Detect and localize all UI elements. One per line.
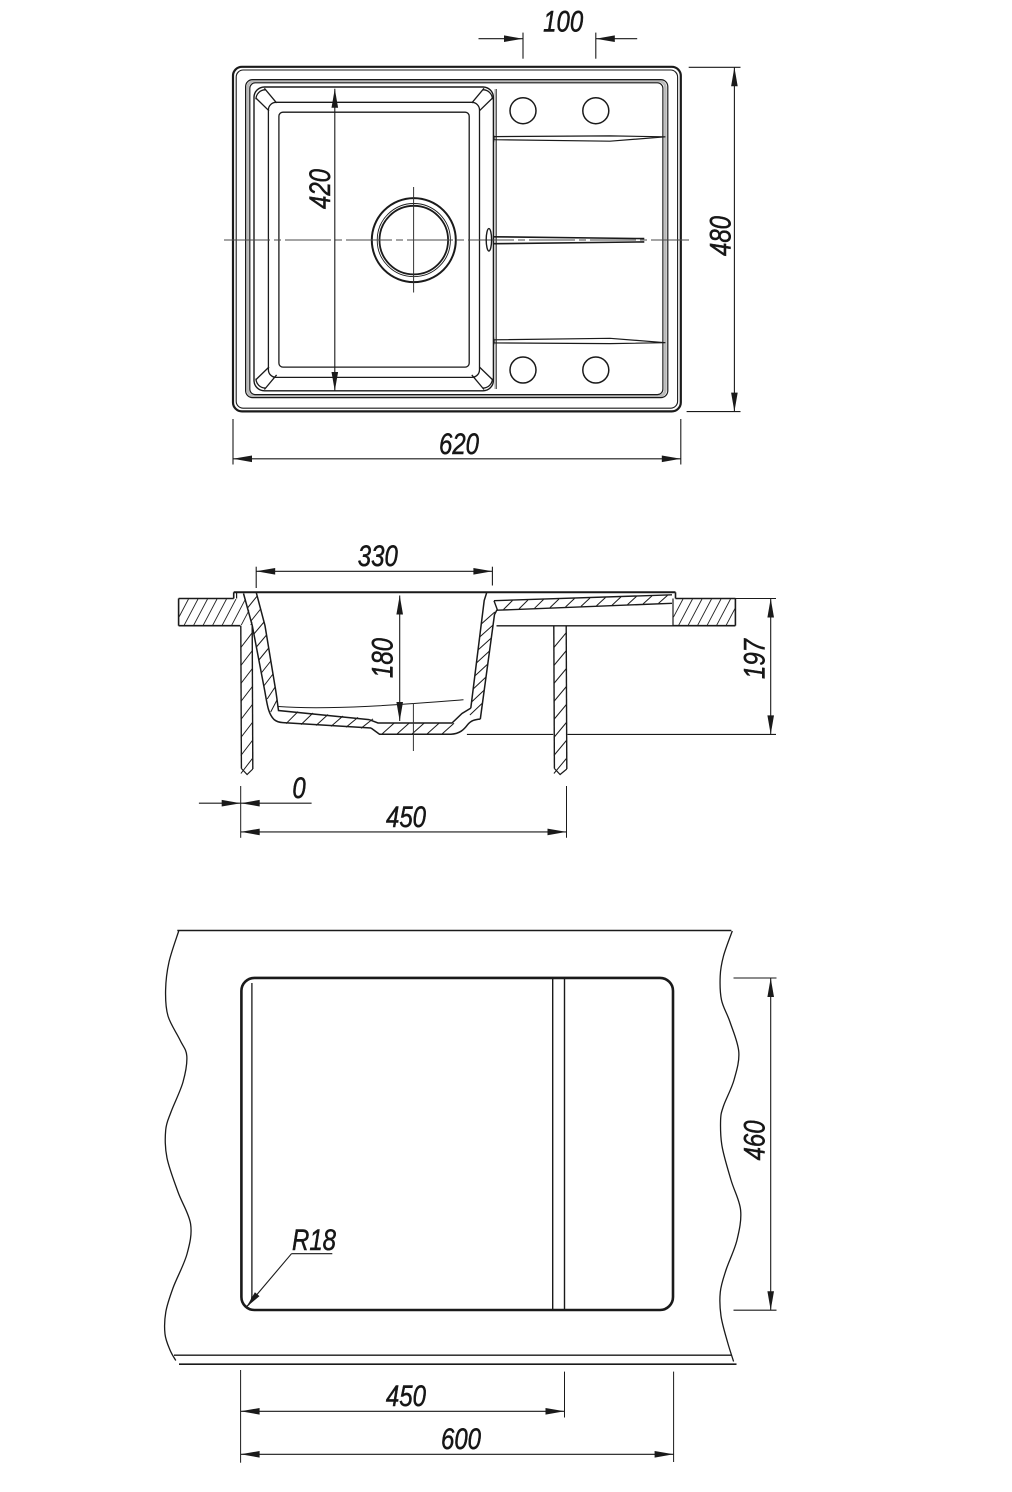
- svg-text:0: 0: [292, 770, 305, 804]
- svg-text:600: 600: [441, 1422, 481, 1456]
- svg-text:R18: R18: [292, 1222, 336, 1256]
- svg-text:330: 330: [358, 539, 398, 573]
- svg-text:197: 197: [737, 638, 771, 679]
- svg-text:620: 620: [439, 426, 479, 460]
- svg-text:420: 420: [302, 169, 336, 209]
- svg-text:460: 460: [737, 1120, 771, 1160]
- svg-text:450: 450: [386, 1378, 426, 1412]
- svg-text:100: 100: [543, 4, 583, 38]
- svg-text:180: 180: [365, 638, 399, 678]
- svg-text:450: 450: [386, 799, 426, 833]
- svg-text:480: 480: [703, 216, 737, 256]
